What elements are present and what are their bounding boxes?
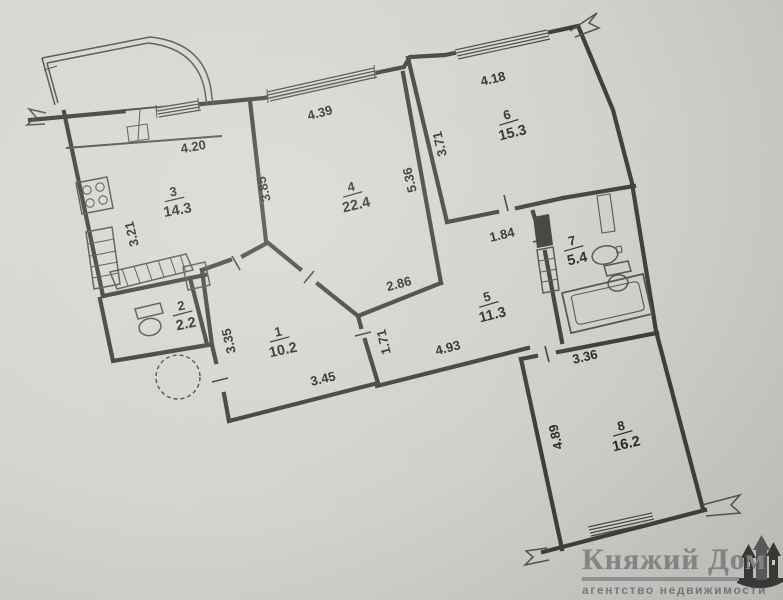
wall-room1-bottom [229,383,378,421]
dimension-label: 5.36 [399,166,419,194]
room-5-label: 511.3 [473,286,508,327]
room-number: 1 [273,324,283,340]
room-2-label: 22.2 [170,296,198,335]
dimension-label: 4.20 [179,137,207,156]
garbage-chute-circle [156,355,200,399]
dimension-label: 4.18 [479,68,507,89]
dimension-label: 3.21 [121,220,141,248]
bathtub-icon [562,274,652,333]
wall-room1-chamfer [267,242,358,316]
room-area: 10.2 [268,340,299,362]
room-area: 5.4 [566,249,589,269]
wall-room8-bottom [543,510,705,552]
room-number: 6 [502,106,513,122]
dimension-label: 1.84 [488,224,517,244]
room-3-label: 314.3 [159,182,193,221]
room-7-label: 75.4 [561,231,589,270]
dimension-label: 2.86 [385,273,413,294]
wall-kitchen-room4 [250,101,266,241]
wall-room1-right [358,316,378,383]
dimension-label: 3.85 [253,175,273,203]
wall-kitchen-left [64,112,103,296]
room-6-label: 615.3 [492,104,528,145]
door-opening-icon [504,195,508,211]
castle-icon [737,535,783,588]
door-opening-icon [304,271,314,283]
dimension-label: 1.71 [373,328,393,356]
floor-plan-drawing: 4.204.394.183.213.855.363.711.842.863.35… [0,0,783,600]
room-area: 2.2 [175,315,198,335]
balcony [42,37,214,105]
door-opening-icon [355,332,371,336]
wall-break-icon [702,495,740,516]
balcony-rail-tick [44,66,57,70]
room-1-label: 110.2 [264,321,299,361]
duct-icon [597,194,615,233]
plan-labels: 4.204.394.183.213.855.363.711.842.863.35… [121,68,641,455]
floor-plan-photo: 4.204.394.183.213.855.363.711.842.863.35… [0,0,783,600]
vent-shaft-icon [533,214,553,248]
wall-room8-left [521,359,562,549]
dimension-label: 3.35 [218,327,238,355]
dimension-label: 3.45 [309,368,337,388]
room-area: 14.3 [162,200,193,221]
door-opening-icon [232,256,240,270]
room-8-label: 816.2 [607,415,642,455]
room-number: 3 [168,184,178,200]
room-number: 2 [176,298,186,314]
wall-room1-top [202,243,267,270]
toilet-icon [135,303,163,338]
room-area: 22.4 [341,194,372,216]
room-number: 8 [616,417,626,433]
room-number: 7 [567,232,577,248]
door-opening-icon [212,378,228,382]
room-area: 11.3 [477,304,507,326]
kitchen-counter-icon [110,254,193,289]
room-number: 4 [346,178,357,194]
dimension-label: 4.93 [434,337,462,358]
room-area: 15.3 [497,122,528,144]
room-area: 16.2 [611,433,642,455]
balcony-door-gap [126,112,156,115]
room-number: 5 [482,288,493,304]
dimension-label: 4.89 [545,423,565,451]
dimension-label: 4.39 [306,102,334,123]
room-4-label: 422.4 [337,176,372,216]
wall-right [579,28,703,509]
door-opening-icon [545,346,549,362]
